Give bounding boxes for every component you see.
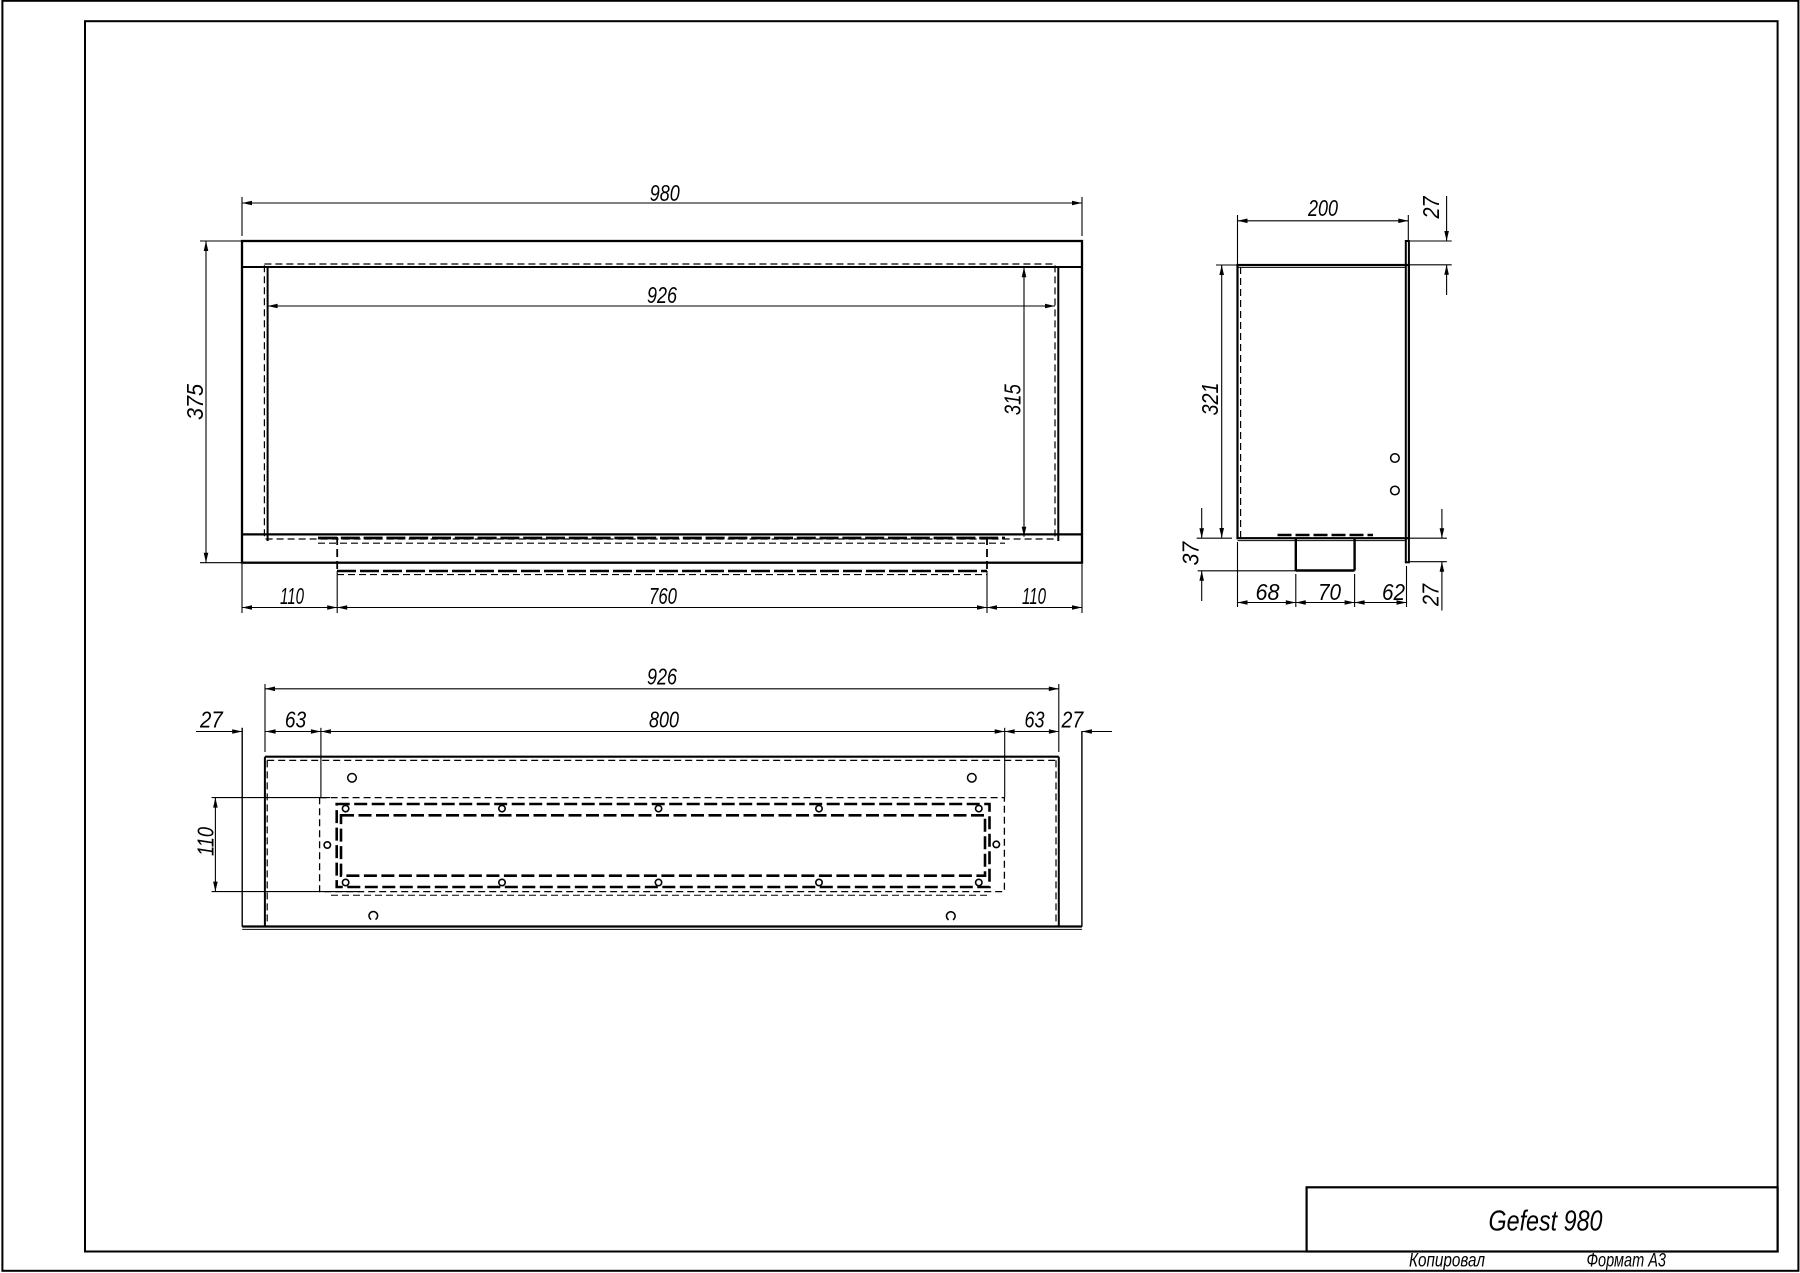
svg-text:68: 68	[1256, 579, 1280, 605]
svg-text:980: 980	[650, 180, 680, 206]
svg-text:27: 27	[199, 707, 223, 733]
svg-text:27: 27	[1061, 707, 1084, 733]
svg-text:27: 27	[1418, 583, 1444, 607]
svg-text:62: 62	[1382, 579, 1405, 605]
svg-text:926: 926	[647, 664, 678, 690]
svg-text:800: 800	[649, 707, 679, 733]
svg-text:375: 375	[182, 383, 208, 420]
svg-text:70: 70	[1318, 579, 1341, 605]
svg-text:Копировал: Копировал	[1409, 1251, 1485, 1272]
svg-text:315: 315	[999, 383, 1025, 415]
svg-text:37: 37	[1177, 541, 1203, 565]
svg-text:321: 321	[1197, 383, 1223, 416]
svg-text:926: 926	[647, 282, 678, 308]
svg-text:110: 110	[1022, 583, 1046, 609]
svg-text:63: 63	[1025, 707, 1045, 733]
svg-text:27: 27	[1418, 196, 1444, 220]
svg-text:760: 760	[649, 583, 677, 609]
svg-text:110: 110	[280, 583, 304, 609]
svg-text:Gefest 980: Gefest 980	[1489, 1206, 1603, 1238]
svg-text:110: 110	[193, 827, 219, 856]
svg-text:Формат А3: Формат А3	[1587, 1251, 1667, 1272]
svg-text:200: 200	[1307, 195, 1338, 221]
svg-text:63: 63	[285, 707, 306, 733]
